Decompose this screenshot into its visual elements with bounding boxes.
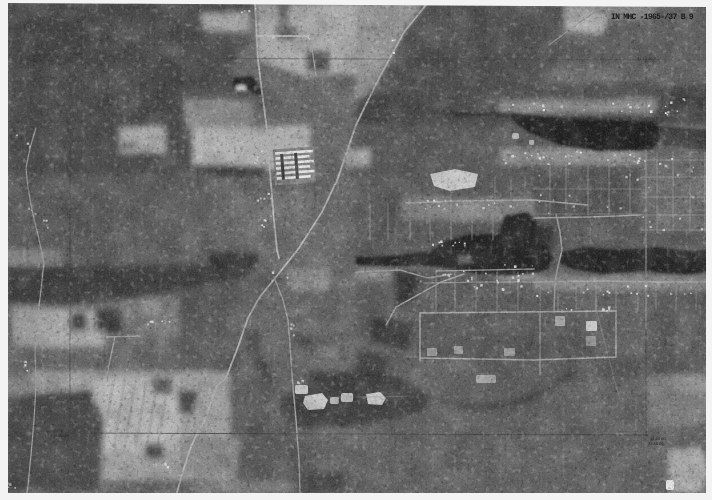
svg-text:+ 41 22 30: + 41 22 30 [64,51,84,56]
svg-text:72 45 00: 72 45 00 [648,441,664,446]
svg-text:41 22 30 +: 41 22 30 + [637,56,657,61]
svg-text:IN MHC -1965-/37 B 9: IN MHC -1965-/37 B 9 [611,13,694,22]
svg-text:+ 41 20 00: + 41 20 00 [50,433,70,438]
